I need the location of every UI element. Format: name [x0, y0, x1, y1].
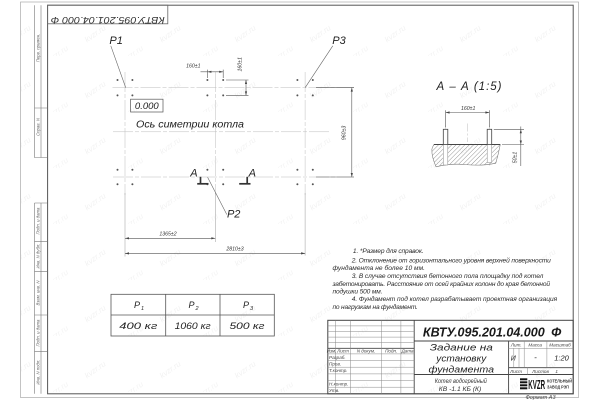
- svg-text:Т.контр.: Т.контр.: [329, 368, 348, 373]
- svg-text:Р: Р: [243, 300, 249, 310]
- svg-text:1: 1: [555, 369, 558, 374]
- svg-text:Масса: Масса: [528, 343, 542, 348]
- svg-text:Взам. инв. N: Взам. инв. N: [36, 280, 41, 306]
- svg-text:Пров.: Пров.: [329, 362, 341, 367]
- svg-text:1: 1: [141, 306, 144, 312]
- svg-text:Ф: Ф: [551, 324, 562, 339]
- svg-text:А: А: [248, 168, 256, 180]
- svg-text:3. В случае отсутствия бетонн: 3. В случае отсутствия бетонного пола пл…: [352, 272, 544, 280]
- svg-text:160±1: 160±1: [238, 57, 244, 72]
- svg-text:160±1: 160±1: [186, 63, 201, 69]
- svg-text:1365±2: 1365±2: [159, 232, 176, 238]
- svg-text:Подп.: Подп.: [385, 349, 397, 354]
- svg-text:Р3: Р3: [332, 35, 346, 47]
- svg-text:500 кг: 500 кг: [230, 321, 266, 331]
- svg-text:Лист: Лист: [509, 369, 522, 374]
- svg-text:Подп. и дата: Подп. и дата: [36, 207, 41, 235]
- svg-text:Р: Р: [188, 300, 194, 310]
- svg-text:Листов: Листов: [531, 369, 549, 374]
- svg-text:фундамента не более 10 мм.: фундамента не более 10 мм.: [333, 264, 426, 272]
- svg-text:Утв.: Утв.: [329, 388, 339, 393]
- svg-text:Лист: Лист: [336, 349, 349, 354]
- svg-text:4. Фундамент под котел разраб: 4. Фундамент под котел разрабатывает про…: [352, 295, 558, 303]
- svg-text:Масштаб: Масштаб: [549, 343, 571, 348]
- svg-text:2. Отклонение от горизонтальн: 2. Отклонение от горизонтального уровня …: [351, 256, 551, 264]
- svg-text:400 кг: 400 кг: [119, 321, 158, 331]
- svg-text:Разраб.: Разраб.: [329, 355, 346, 360]
- svg-text:Инв. N дубл.: Инв. N дубл.: [36, 244, 41, 269]
- svg-text:-: -: [534, 353, 537, 362]
- svg-text:Ось симетрии котла: Ось симетрии котла: [136, 120, 244, 131]
- svg-text:КВТУ.095.201.04.000: КВТУ.095.201.04.000: [423, 324, 546, 339]
- svg-text:1060 кг: 1060 кг: [175, 321, 212, 331]
- svg-text:Р: Р: [134, 300, 140, 310]
- svg-text:Перв. примен.: Перв. примен.: [36, 34, 41, 63]
- svg-text:N докум.: N докум.: [357, 349, 376, 354]
- svg-text:Н.контр.: Н.контр.: [329, 382, 348, 387]
- svg-text:по нагрузкам на фундамент.: по нагрузкам на фундамент.: [333, 303, 419, 311]
- svg-text:ЗАВОД РЭП: ЗАВОД РЭП: [547, 385, 569, 390]
- svg-text:КВ -1.1 КБ (К): КВ -1.1 КБ (К): [439, 387, 482, 393]
- svg-text:KVZR: KVZR: [528, 378, 545, 392]
- svg-text:фундамента: фундамента: [429, 365, 495, 375]
- svg-text:0.000: 0.000: [135, 101, 159, 112]
- svg-text:Задание на: Задание на: [430, 343, 493, 353]
- svg-text:установку: установку: [435, 354, 487, 364]
- svg-text:подушки 500 мм.: подушки 500 мм.: [333, 288, 383, 296]
- svg-text:Изм.: Изм.: [327, 349, 337, 354]
- svg-text:Формат А3: Формат А3: [525, 395, 556, 400]
- svg-text:Справ. N: Справ. N: [36, 117, 41, 136]
- svg-text:1:20: 1:20: [554, 353, 569, 362]
- svg-text:Котел водогрейный: Котел водогрейный: [435, 378, 488, 385]
- svg-text:960±3: 960±3: [341, 126, 347, 141]
- svg-text:Р2: Р2: [227, 208, 240, 220]
- svg-text:А – А (1:5): А – А (1:5): [436, 81, 503, 93]
- svg-text:забетонировать. Расстояние от: забетонировать. Расстояние от осей крайн…: [332, 280, 551, 288]
- svg-text:КОТЕЛЬНЫЙ: КОТЕЛЬНЫЙ: [547, 379, 572, 384]
- svg-text:Дата: Дата: [400, 349, 414, 354]
- svg-text:Р1: Р1: [109, 35, 122, 47]
- svg-text:160±1: 160±1: [461, 106, 476, 112]
- svg-text:Лит.: Лит.: [510, 343, 522, 348]
- svg-text:2810±3: 2810±3: [225, 246, 243, 252]
- svg-text:А: А: [189, 168, 197, 180]
- svg-text:КВТУ.095.201.04.000 Ф: КВТУ.095.201.04.000 Ф: [50, 14, 164, 25]
- svg-text:Подп. и дата: Подп. и дата: [36, 319, 41, 347]
- svg-text:2: 2: [194, 306, 198, 312]
- svg-text:Инв. N подл.: Инв. N подл.: [36, 359, 41, 384]
- svg-text:1. *Размер для справок.: 1. *Размер для справок.: [353, 247, 424, 255]
- svg-text:50±1: 50±1: [513, 152, 519, 164]
